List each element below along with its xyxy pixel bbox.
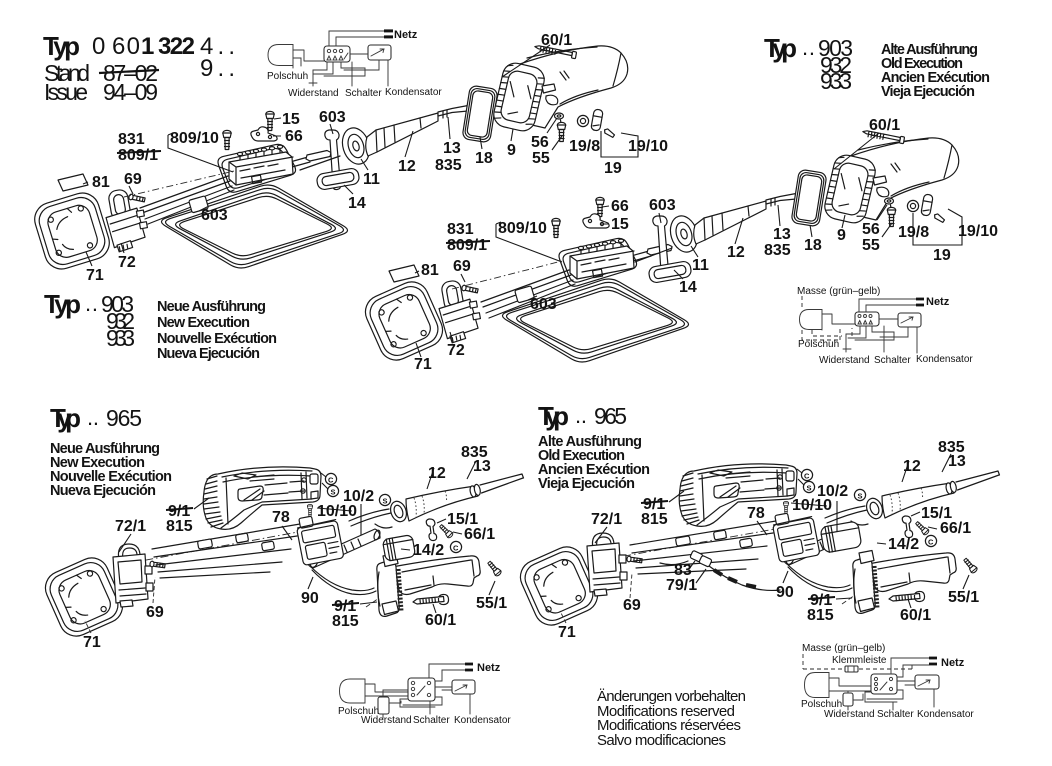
svg-text:Typ: Typ xyxy=(50,403,81,433)
svg-text:60/1: 60/1 xyxy=(425,612,456,629)
svg-text:60: 60 xyxy=(112,33,140,60)
svg-text:19/8: 19/8 xyxy=(898,224,929,241)
svg-text:55: 55 xyxy=(532,150,550,167)
svg-text:12: 12 xyxy=(428,465,446,482)
svg-text:1 322: 1 322 xyxy=(141,33,195,60)
svg-text:81: 81 xyxy=(421,262,439,279)
svg-text:Masse (grün–gelb): Masse (grün–gelb) xyxy=(802,643,885,654)
svg-text:933: 933 xyxy=(106,325,135,351)
svg-text:809/1: 809/1 xyxy=(447,237,487,254)
svg-text:71: 71 xyxy=(414,356,432,373)
svg-text:69: 69 xyxy=(453,258,471,275)
svg-text:815: 815 xyxy=(166,518,193,535)
svg-text:933: 933 xyxy=(820,68,852,94)
svg-text:69: 69 xyxy=(623,597,641,614)
svg-text:Widerstand: Widerstand xyxy=(288,88,339,99)
svg-text:60/1: 60/1 xyxy=(900,607,931,624)
svg-text:72: 72 xyxy=(118,254,136,271)
svg-text:Polschuh: Polschuh xyxy=(267,71,308,82)
svg-text:13: 13 xyxy=(948,453,966,470)
svg-text:18: 18 xyxy=(475,150,493,167)
svg-text:831: 831 xyxy=(447,221,474,238)
svg-text:603: 603 xyxy=(649,197,676,214)
svg-text:Netz: Netz xyxy=(394,29,418,41)
svg-text:Kondensator: Kondensator xyxy=(385,87,442,98)
svg-text:Netz: Netz xyxy=(926,296,950,308)
svg-text:Widerstand: Widerstand xyxy=(361,715,412,726)
svg-text:965: 965 xyxy=(106,405,142,431)
svg-text:809/10: 809/10 xyxy=(498,220,547,237)
svg-text:15: 15 xyxy=(611,216,629,233)
svg-text:S: S xyxy=(807,484,812,493)
svg-text:Salvo modificaciones: Salvo modificaciones xyxy=(597,732,726,749)
svg-text:66: 66 xyxy=(285,128,303,145)
svg-text:9 . .: 9 . . xyxy=(200,55,235,82)
svg-text:831: 831 xyxy=(118,131,145,148)
svg-text:9: 9 xyxy=(837,227,846,244)
svg-text:55/1: 55/1 xyxy=(476,595,507,612)
svg-text:55: 55 xyxy=(862,237,880,254)
svg-text:Nueva Ejecución: Nueva Ejecución xyxy=(50,483,156,499)
svg-text:66/1: 66/1 xyxy=(940,520,971,537)
svg-text:72/1: 72/1 xyxy=(591,511,622,528)
svg-text:71: 71 xyxy=(558,624,576,641)
svg-text:81: 81 xyxy=(92,174,110,191)
svg-text:Widerstand: Widerstand xyxy=(824,709,875,720)
svg-text:72: 72 xyxy=(447,342,465,359)
svg-text:10/10: 10/10 xyxy=(792,497,832,514)
svg-text:12: 12 xyxy=(398,158,416,175)
svg-text:15: 15 xyxy=(282,111,300,128)
svg-text:19: 19 xyxy=(604,160,622,177)
svg-text:Schalter: Schalter xyxy=(413,715,450,726)
svg-text:965: 965 xyxy=(594,403,627,429)
svg-text:Netz: Netz xyxy=(941,657,965,669)
svg-text:94–09: 94–09 xyxy=(103,79,158,105)
svg-text:Issue: Issue xyxy=(44,79,88,105)
svg-text:815: 815 xyxy=(332,613,359,630)
svg-text:Klemmleiste: Klemmleiste xyxy=(832,655,887,666)
svg-text:78: 78 xyxy=(272,509,290,526)
svg-text:78: 78 xyxy=(747,505,765,522)
svg-text:19/8: 19/8 xyxy=(569,138,600,155)
svg-text:12: 12 xyxy=(903,458,921,475)
svg-text:Schalter: Schalter xyxy=(874,355,911,366)
svg-text:Netz: Netz xyxy=(477,662,501,674)
svg-text:. .: . . xyxy=(802,35,815,60)
svg-text:Schalter: Schalter xyxy=(345,88,382,99)
svg-text:13: 13 xyxy=(773,226,791,243)
svg-text:56: 56 xyxy=(862,221,880,238)
svg-text:90: 90 xyxy=(776,584,794,601)
svg-text:809/10: 809/10 xyxy=(170,130,219,147)
svg-text:Vieja Ejecución: Vieja Ejecución xyxy=(881,84,975,100)
svg-text:14/2: 14/2 xyxy=(888,536,919,553)
svg-text:11: 11 xyxy=(363,171,380,188)
svg-text:835: 835 xyxy=(764,242,791,259)
svg-text:13: 13 xyxy=(473,458,491,475)
svg-text:C: C xyxy=(328,476,334,485)
svg-text:13: 13 xyxy=(443,140,461,157)
svg-text:C: C xyxy=(928,538,934,547)
svg-text:Nouvelle Exécution: Nouvelle Exécution xyxy=(157,331,277,347)
svg-text:56: 56 xyxy=(531,134,549,151)
svg-text:Widerstand: Widerstand xyxy=(819,355,870,366)
svg-text:Kondensator: Kondensator xyxy=(916,354,973,365)
svg-text:Schalter: Schalter xyxy=(877,709,914,720)
svg-text:71: 71 xyxy=(86,267,104,284)
svg-text:S: S xyxy=(331,488,336,497)
svg-text:71: 71 xyxy=(83,634,101,651)
svg-text:Polschuh: Polschuh xyxy=(798,339,839,350)
svg-text:72/1: 72/1 xyxy=(115,518,146,535)
svg-text:Typ: Typ xyxy=(43,31,80,61)
svg-text:14: 14 xyxy=(348,195,366,212)
svg-text:90: 90 xyxy=(301,590,319,607)
svg-text:809/1: 809/1 xyxy=(118,147,158,164)
svg-text:0: 0 xyxy=(92,33,105,60)
svg-text:835: 835 xyxy=(435,157,462,174)
svg-text:Typ: Typ xyxy=(44,289,81,319)
svg-text:815: 815 xyxy=(641,511,668,528)
svg-text:815: 815 xyxy=(807,607,834,624)
svg-text:New Execution: New Execution xyxy=(157,315,250,331)
svg-text:. .: . . xyxy=(575,403,587,428)
svg-text:14/2: 14/2 xyxy=(413,542,444,559)
svg-text:66: 66 xyxy=(611,198,629,215)
svg-text:Nueva Ejecución: Nueva Ejecución xyxy=(157,346,260,362)
svg-text:Masse (grün–gelb): Masse (grün–gelb) xyxy=(797,286,880,297)
svg-text:9: 9 xyxy=(507,142,516,159)
svg-text:14: 14 xyxy=(679,279,697,296)
svg-text:Typ: Typ xyxy=(764,33,797,63)
svg-text:60/1: 60/1 xyxy=(869,117,900,134)
svg-text:Neue Ausführung: Neue Ausführung xyxy=(157,299,266,315)
svg-text:19/10: 19/10 xyxy=(958,223,998,240)
svg-text:Typ: Typ xyxy=(538,401,569,431)
svg-text:79/1: 79/1 xyxy=(666,577,697,594)
svg-text:55/1: 55/1 xyxy=(948,589,979,606)
svg-text:69: 69 xyxy=(146,604,164,621)
svg-text:603: 603 xyxy=(530,296,557,313)
svg-text:11: 11 xyxy=(692,257,709,274)
svg-text:18: 18 xyxy=(804,237,822,254)
svg-text:19/10: 19/10 xyxy=(628,138,668,155)
svg-text:603: 603 xyxy=(319,109,346,126)
svg-text:10/10: 10/10 xyxy=(317,503,357,520)
svg-text:S: S xyxy=(858,492,863,501)
svg-text:. .: . . xyxy=(87,405,99,430)
svg-text:Vieja Ejecución: Vieja Ejecución xyxy=(538,476,635,492)
svg-text:. .: . . xyxy=(85,291,98,316)
svg-text:69: 69 xyxy=(124,171,142,188)
svg-text:C: C xyxy=(453,544,459,553)
svg-text:Kondensator: Kondensator xyxy=(917,709,974,720)
svg-text:C: C xyxy=(804,472,810,481)
svg-text:Kondensator: Kondensator xyxy=(454,715,511,726)
svg-text:19: 19 xyxy=(933,247,951,264)
svg-text:66/1: 66/1 xyxy=(464,526,495,543)
svg-text:S: S xyxy=(383,497,388,506)
svg-text:12: 12 xyxy=(727,244,745,261)
svg-text:603: 603 xyxy=(201,207,228,224)
svg-text:60/1: 60/1 xyxy=(541,32,572,49)
